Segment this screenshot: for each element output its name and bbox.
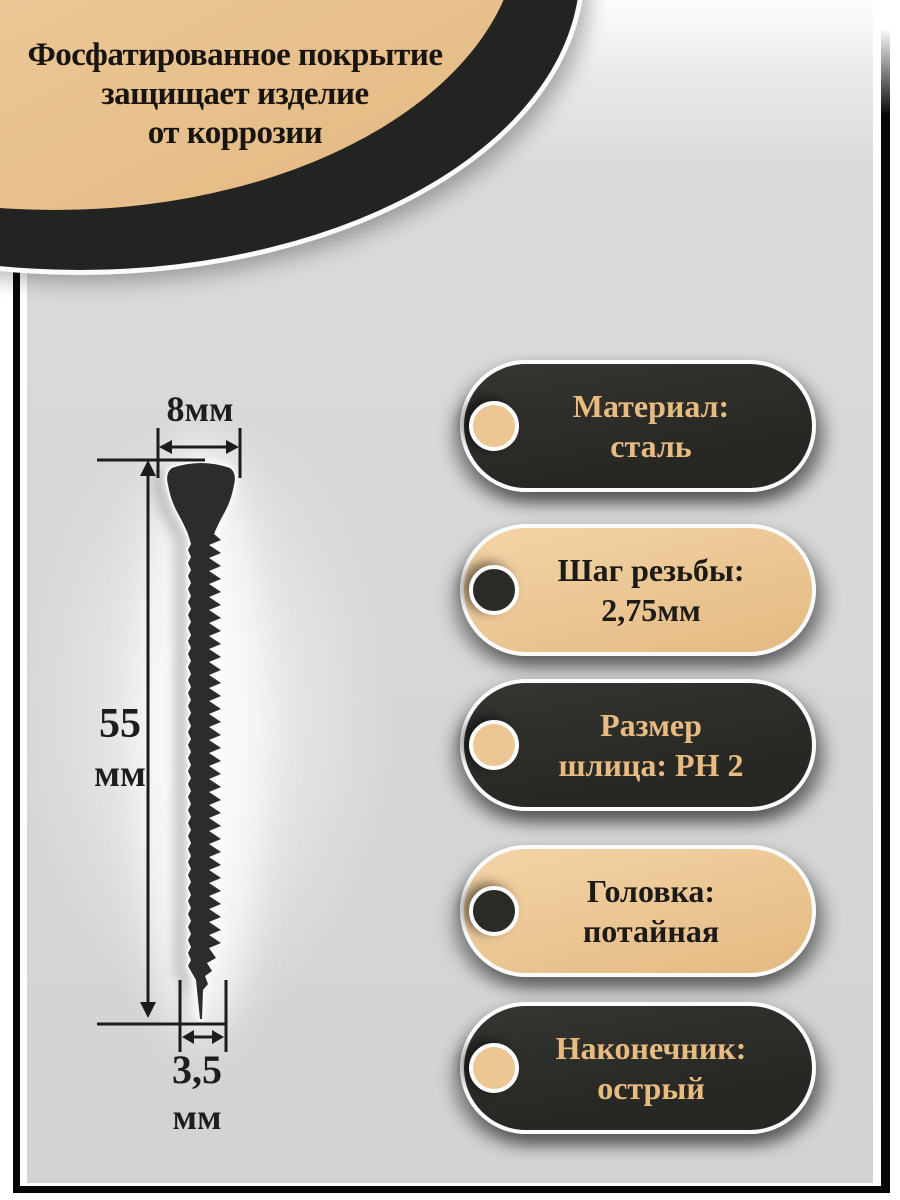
spec-pill-tip-type: Наконечник: острый xyxy=(460,1002,816,1134)
pill-dot-icon xyxy=(469,720,519,770)
corner-badge-line: защищает изделие xyxy=(0,75,470,114)
pill-line: Материал: xyxy=(573,386,729,426)
diameter-unit-label: мм xyxy=(152,1096,242,1138)
pill-line: потайная xyxy=(583,911,719,951)
pill-line: Наконечник: xyxy=(556,1028,747,1068)
head-width-label: 8мм xyxy=(145,388,255,430)
pill-line: сталь xyxy=(573,426,729,466)
pill-line: Головка: xyxy=(583,871,719,911)
pill-text: Шаг резьбы: 2,75мм xyxy=(531,550,744,630)
pill-dot-icon xyxy=(469,1043,519,1093)
bottom-frame-line xyxy=(13,1186,890,1193)
spec-pill-thread-pitch: Шаг резьбы: 2,75мм xyxy=(460,524,816,656)
pill-line: шлица: PH 2 xyxy=(559,745,744,785)
pill-text: Наконечник: острый xyxy=(530,1028,747,1108)
pill-text: Материал: сталь xyxy=(547,386,729,466)
corner-badge-text: Фосфатированное покрытие защищает издели… xyxy=(0,36,470,153)
pill-line: Размер xyxy=(559,705,744,745)
pill-line: Шаг резьбы: xyxy=(557,550,744,590)
corner-badge-line: Фосфатированное покрытие xyxy=(0,36,470,75)
pill-dot-icon xyxy=(469,565,519,615)
corner-badge-line: от коррозии xyxy=(0,114,470,153)
pill-dot-icon xyxy=(469,886,519,936)
pill-line: 2,75мм xyxy=(557,590,744,630)
length-value-label: 55 xyxy=(70,700,170,748)
spec-pill-material: Материал: сталь xyxy=(460,360,816,492)
length-unit-label: мм xyxy=(70,752,170,796)
diameter-value-label: 3,5 xyxy=(152,1046,242,1093)
pill-dot-icon xyxy=(469,401,519,451)
pill-line: острый xyxy=(556,1068,747,1108)
spec-pill-drive-size: Размер шлица: PH 2 xyxy=(460,679,816,811)
spec-pill-head-type: Головка: потайная xyxy=(460,845,816,977)
right-frame-line xyxy=(881,0,890,1193)
pill-text: Размер шлица: PH 2 xyxy=(533,705,744,785)
pill-text: Головка: потайная xyxy=(557,871,719,951)
product-card: 8мм 55 мм 3,5 мм Фосфатированное покрыти… xyxy=(0,0,900,1200)
